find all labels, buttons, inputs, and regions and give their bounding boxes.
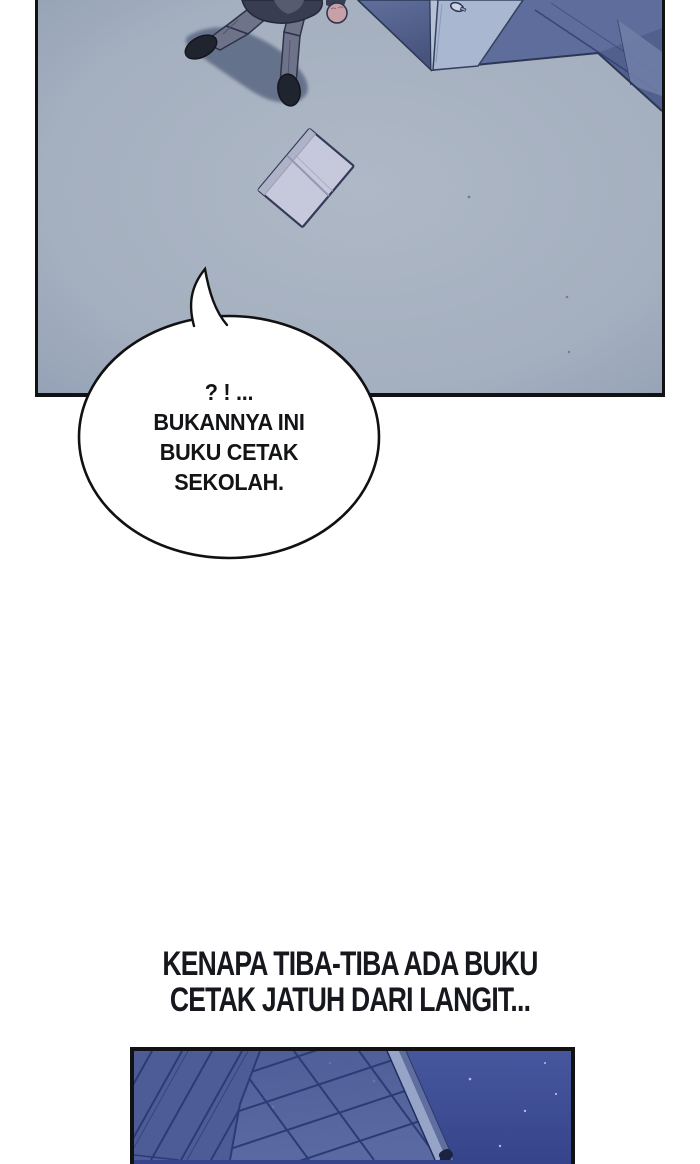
character-fist [326,0,347,23]
building-night-scene [134,1051,571,1160]
narration-text: KENAPA TIBA-TIBA ADA BUKU CETAK JATUH DA… [77,946,623,1018]
comic-panel-bottom [130,1047,575,1164]
webtoon-page: ? ! ... BUKANNYA INI BUKU CETAK SEKOLAH.… [0,0,700,1160]
building-facade [134,1051,454,1160]
bubble-line-1: ? ! ... [205,377,253,407]
narration-line-2: CETAK JATUH DARI LANGIT... [77,982,623,1018]
speech-bubble-text: ? ! ... BUKANNYA INI BUKU CETAK SEKOLAH. [88,317,370,557]
bubble-line-4: SEKOLAH. [174,467,283,497]
speech-bubble: ? ! ... BUKANNYA INI BUKU CETAK SEKOLAH. [70,254,400,574]
bubble-line-3: BUKU CETAK [160,437,299,467]
bubble-line-2: BUKANNYA INI [153,407,304,437]
narration-line-1: KENAPA TIBA-TIBA ADA BUKU [77,946,623,982]
